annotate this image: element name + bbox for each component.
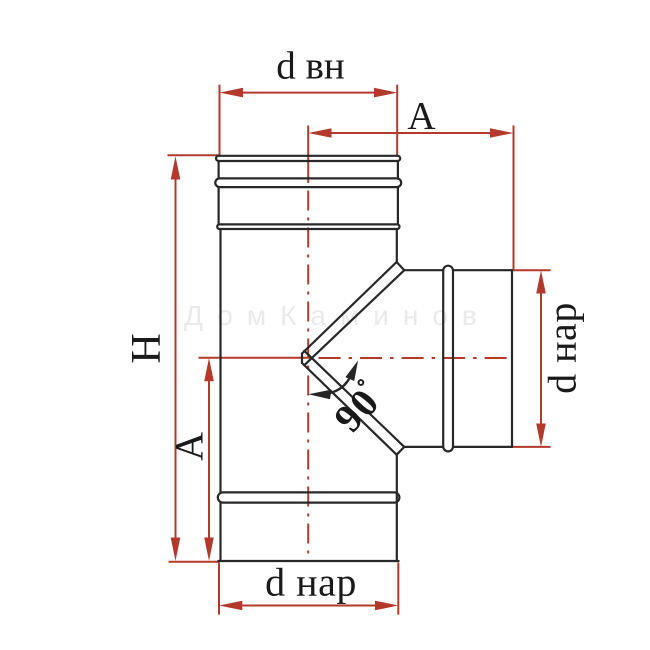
svg-text:d нар: d нар [540,302,585,394]
svg-text:H: H [124,333,170,363]
svg-text:ДомКаминов: ДомКаминов [184,300,491,331]
svg-text:d нар: d нар [265,560,357,605]
svg-text:d вн: d вн [276,45,345,88]
svg-text:A: A [407,94,435,137]
svg-text:A: A [167,432,212,461]
